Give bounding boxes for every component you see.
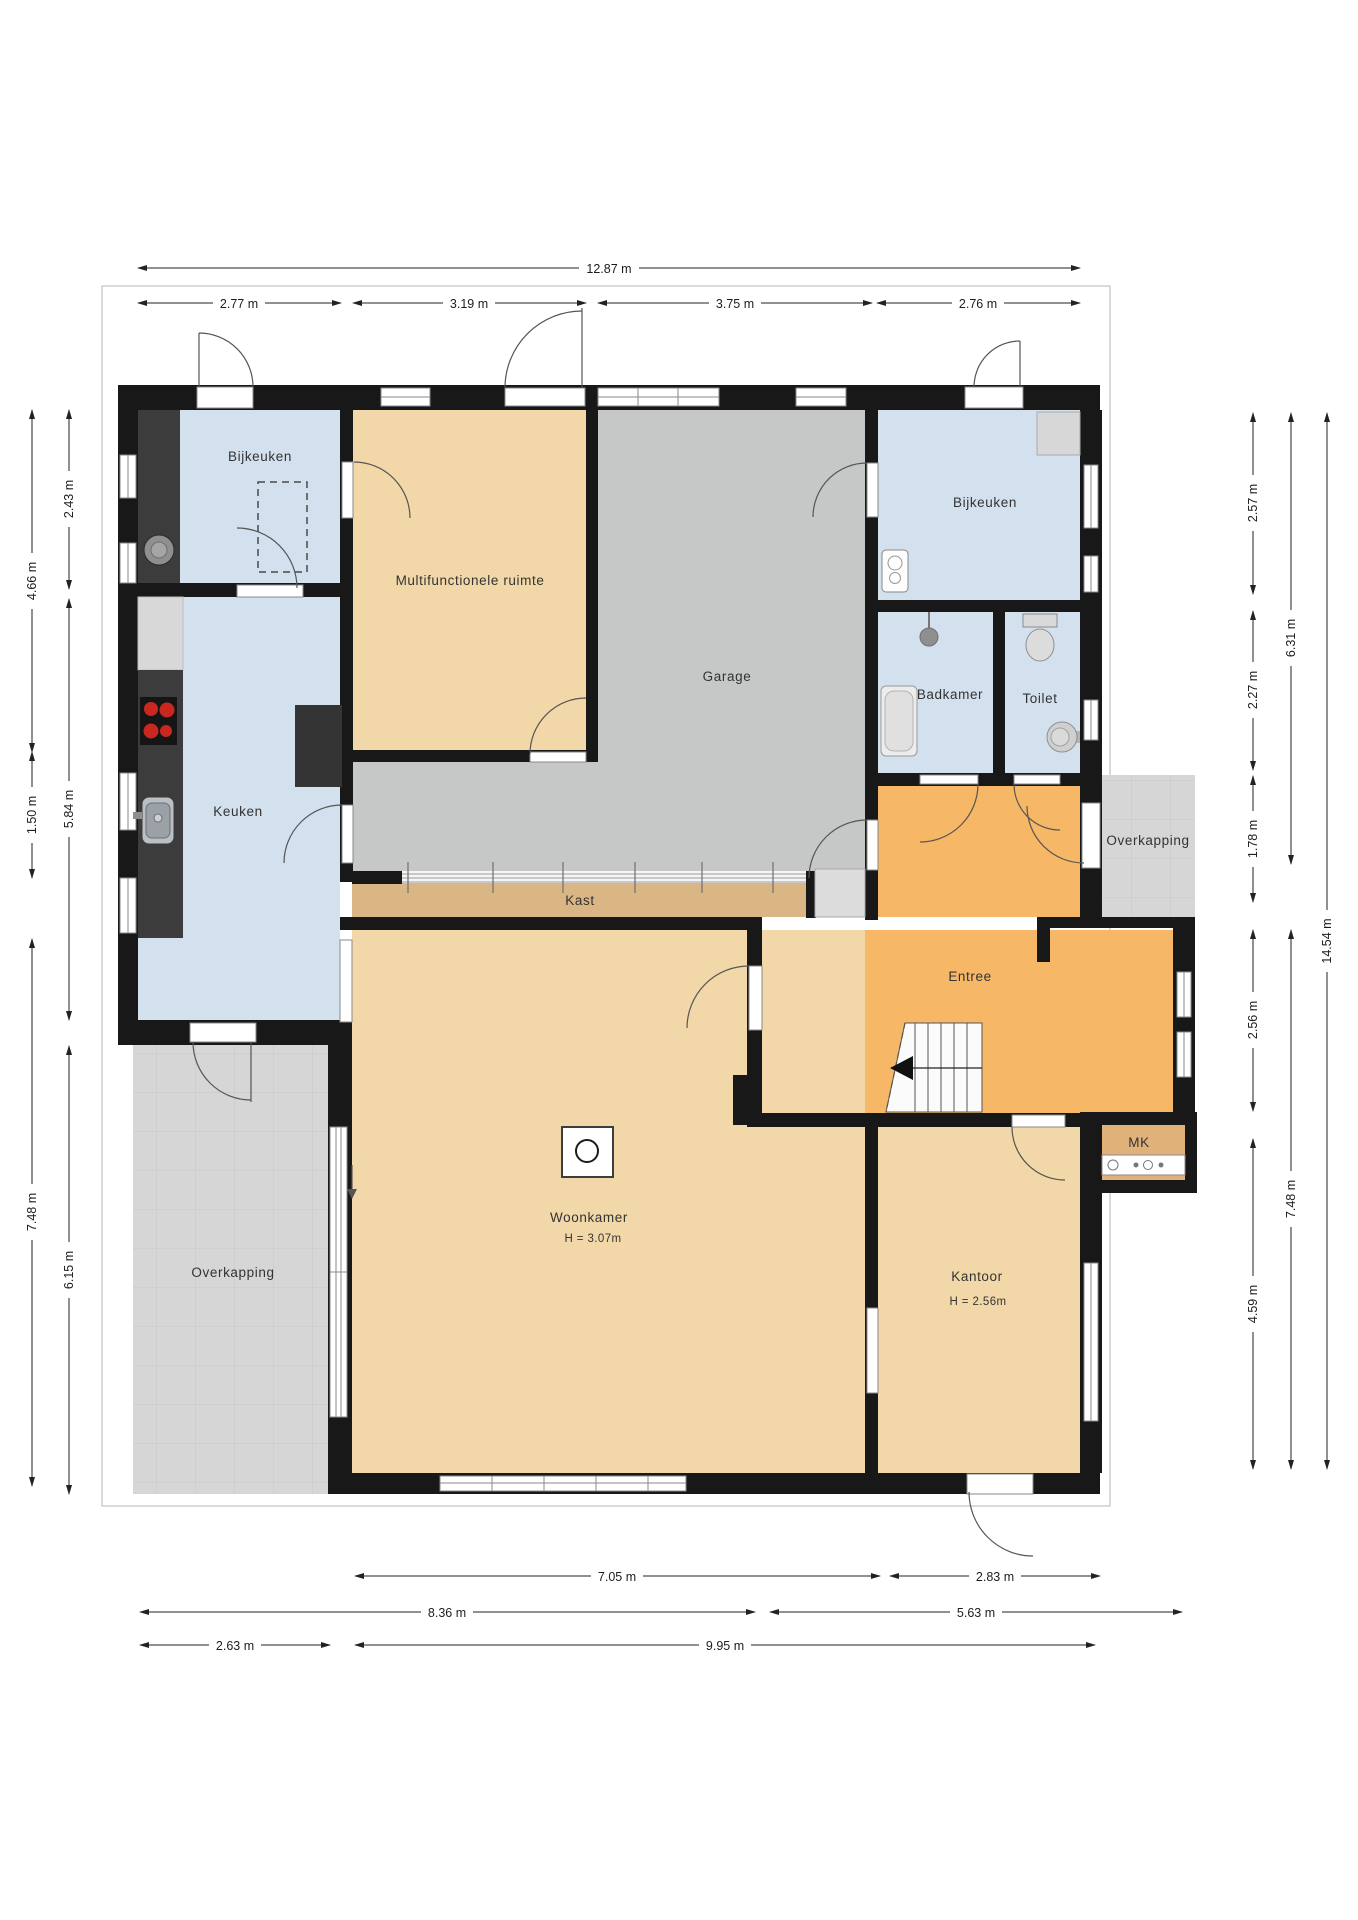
label-overkapping-right: Overkapping: [1106, 833, 1189, 848]
door-opening-toilet: [1014, 775, 1060, 784]
floorplan-page: Bijkeuken Multifunctionele ruimte Garage…: [0, 0, 1358, 1920]
wall-badkamer-toilet-bottom: [878, 773, 1102, 786]
door-opening-woonkamer-kantoor: [867, 1308, 878, 1393]
label-kast: Kast: [565, 893, 594, 908]
kast-cabinet: [815, 869, 865, 917]
door-arc: [199, 333, 253, 387]
door-opening-keuken-overkapping: [190, 1023, 256, 1042]
dim-label: 2.43 m: [62, 480, 76, 518]
toilet-tank: [1023, 614, 1057, 627]
toilet-icon: [1026, 629, 1054, 661]
boiler-icon-inner: [151, 542, 167, 558]
dim-label: 2.63 m: [216, 1639, 254, 1653]
wall-mk-top: [1080, 1112, 1197, 1125]
meter-icon: [1134, 1163, 1139, 1168]
dim-label: 2.83 m: [976, 1570, 1014, 1584]
floorplan-canvas: Bijkeuken Multifunctionele ruimte Garage…: [0, 0, 1358, 1920]
label-overkapping-left: Overkapping: [191, 1265, 274, 1280]
dim-label: 7.05 m: [598, 1570, 636, 1584]
label-kantoor: Kantoor: [951, 1269, 1002, 1284]
dim-label: 2.76 m: [959, 297, 997, 311]
dim-label: 14.54 m: [1320, 918, 1334, 963]
dim-label: 5.63 m: [957, 1606, 995, 1620]
shower-head-icon: [920, 628, 938, 646]
label-multifunctionele-ruimte: Multifunctionele ruimte: [396, 573, 545, 588]
fireplace-icon: [562, 1127, 613, 1177]
track-base: [402, 871, 806, 883]
dim-label: 1.50 m: [25, 796, 39, 834]
washbasin-inner: [1051, 728, 1069, 746]
dim-label: 7.48 m: [1284, 1180, 1298, 1218]
wall-bijkeuken-right-bottom: [878, 600, 1102, 612]
wall-kast-top-stub: [352, 871, 402, 884]
door-opening-bijkeuken-left-ext: [197, 387, 253, 408]
dim-label: 3.75 m: [716, 297, 754, 311]
door-arc: [969, 1492, 1033, 1556]
room-floors: [133, 410, 1195, 1494]
bathtub-inner: [885, 691, 913, 751]
dim-label: 7.48 m: [25, 1193, 39, 1231]
wall-kast-bottom: [340, 917, 762, 930]
label-woonkamer-height: H = 3.07m: [565, 1233, 622, 1245]
door-opening-entree-kantoor: [1012, 1115, 1065, 1127]
door-opening-bijkeuken-multif: [342, 462, 353, 518]
door-opening-keuken-woonkamer: [340, 940, 352, 1022]
burner-icon: [160, 725, 172, 737]
dim-label: 2.57 m: [1246, 484, 1260, 522]
wall-entree-notch: [1037, 917, 1050, 962]
door-opening-bijkeuken-right-ext: [965, 387, 1023, 408]
dim-label: 2.27 m: [1246, 671, 1260, 709]
dim-label: 2.77 m: [220, 297, 258, 311]
meter-icon: [1159, 1163, 1164, 1168]
label-bijkeuken-right: Bijkeuken: [953, 495, 1017, 510]
door-opening-garage-entree: [867, 820, 878, 870]
door-opening-keuken-garage: [342, 805, 353, 863]
label-entree: Entree: [948, 969, 991, 984]
door-opening-entree-ext: [1082, 803, 1100, 868]
room-woonkamer: [352, 930, 865, 1473]
label-garage: Garage: [703, 669, 752, 684]
wall-woonkamer-kantoor: [865, 1125, 878, 1473]
door-opening-badkamer: [920, 775, 978, 784]
dim-label: 2.56 m: [1246, 1001, 1260, 1039]
dim-label: 9.95 m: [706, 1639, 744, 1653]
wall-multif-garage: [586, 410, 598, 758]
label-bijkeuken-left: Bijkeuken: [228, 449, 292, 464]
sink-drain: [154, 814, 162, 822]
dim-label: 6.31 m: [1284, 619, 1298, 657]
dim-label: 6.15 m: [62, 1251, 76, 1289]
wall-bay-top: [1037, 917, 1195, 928]
label-toilet: Toilet: [1022, 691, 1057, 706]
dim-label: 5.84 m: [62, 790, 76, 828]
door-opening-multif-ext: [505, 388, 585, 406]
door-opening-multif-garage: [530, 752, 586, 762]
wall-mk-bottom: [1080, 1180, 1197, 1193]
faucet-icon: [133, 812, 142, 819]
door-arc: [505, 311, 582, 388]
burner-icon: [144, 702, 158, 716]
wall-left-upper: [118, 410, 138, 1045]
counter-bijkeuken-right: [1037, 412, 1080, 455]
dim-label: 1.78 m: [1246, 820, 1260, 858]
dim-label: 12.87 m: [586, 262, 631, 276]
label-keuken: Keuken: [213, 804, 262, 819]
kitchen-block: [295, 705, 342, 787]
door-opening-entree-woonkamer: [749, 966, 762, 1030]
label-kantoor-height: H = 2.56m: [950, 1296, 1007, 1308]
burner-icon: [160, 703, 175, 718]
counter-light: [138, 597, 183, 670]
dim-label: 4.66 m: [25, 562, 39, 600]
dim-label: 3.19 m: [450, 297, 488, 311]
wall-badkamer-toilet: [993, 612, 1005, 778]
door-opening-kantoor-ext: [967, 1474, 1033, 1494]
door-opening-bijkeuken-keuken: [237, 585, 303, 597]
burner-icon: [144, 724, 159, 739]
dim-label: 8.36 m: [428, 1606, 466, 1620]
label-badkamer: Badkamer: [917, 687, 983, 702]
door-opening-garage-north: [867, 463, 878, 517]
label-woonkamer: Woonkamer: [550, 1210, 628, 1225]
dim-label: 4.59 m: [1246, 1285, 1260, 1323]
door-arc: [974, 341, 1020, 387]
label-mk: MK: [1128, 1135, 1149, 1150]
